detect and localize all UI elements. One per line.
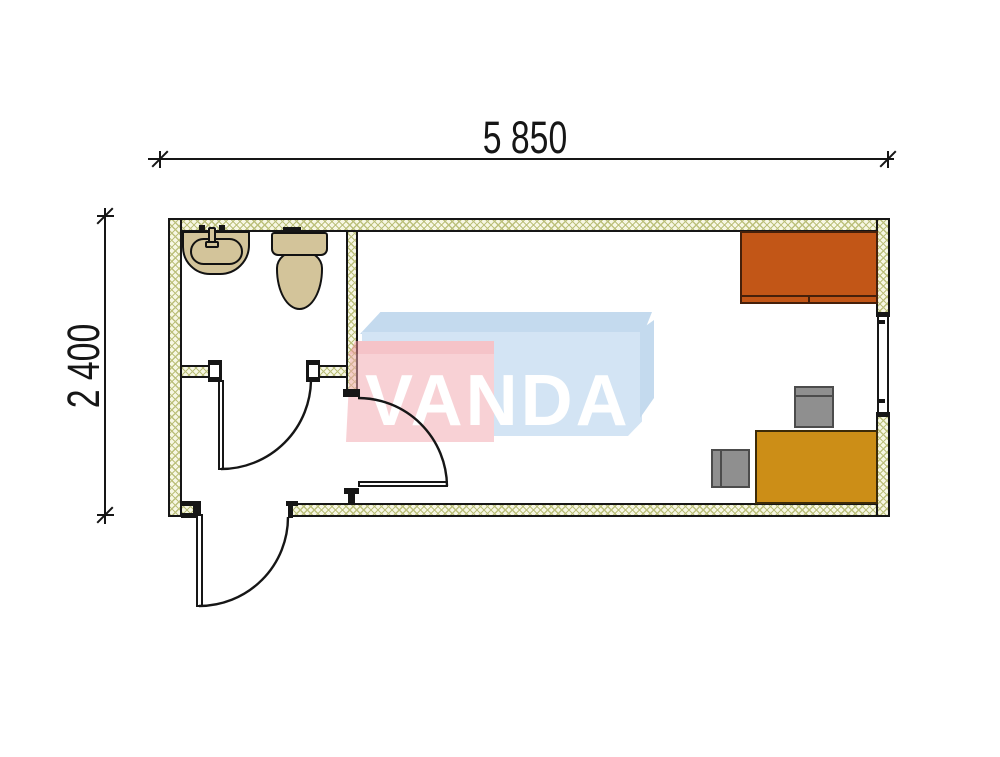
- entry-door-jamb-right-cap: [286, 501, 298, 506]
- cabinet-front-notch: [808, 295, 810, 302]
- faucet-base: [205, 241, 219, 248]
- chair-2: [711, 449, 750, 488]
- chair-2-backrest-line: [720, 451, 722, 486]
- bathroom-door-jamb-left-bar: [219, 360, 222, 382]
- dimension-height-label: 2 400: [61, 254, 107, 479]
- entry-door-jamb-left-cap2: [181, 513, 194, 518]
- watermark-blue-top-bevel: [360, 312, 652, 334]
- brand-watermark: VANDA: [344, 310, 656, 446]
- hall-door-jamb-bottom-bar: [348, 493, 355, 505]
- window-mullion-top: [877, 320, 885, 324]
- window-mullion-bottom: [877, 399, 885, 403]
- chair-1-backrest-line: [796, 395, 832, 397]
- entry-door-opening: [200, 501, 288, 519]
- watermark-text: VANDA: [365, 365, 631, 437]
- bathroom-wall-left-segment: [180, 365, 210, 378]
- watermark-blue-side-bevel: [640, 318, 654, 418]
- hall-door-jamb-top: [343, 389, 360, 397]
- watermark-pink-top-bevel: [348, 341, 494, 356]
- faucet-handle-right: [219, 225, 225, 230]
- toilet-tank: [271, 232, 328, 256]
- faucet-handle-left: [199, 225, 205, 230]
- window-glass-line-outer: [887, 312, 889, 417]
- hall-door-leaf: [358, 481, 448, 487]
- bathroom-door-swing: [221, 379, 311, 469]
- bathroom-door-leaf: [218, 380, 224, 470]
- entry-door-swing: [199, 517, 288, 606]
- wall-top: [168, 218, 890, 232]
- entry-door-jamb-left-cap: [181, 501, 194, 506]
- dimension-width-label: 5 850: [251, 115, 799, 160]
- entry-door-leaf: [196, 514, 203, 607]
- bathroom-door-jamb-right-bar: [306, 360, 309, 382]
- toilet-bowl: [276, 250, 323, 310]
- floor-plan-canvas: 5 850 2 400 VANDA: [0, 0, 1000, 757]
- cabinet: [740, 231, 878, 304]
- desk: [755, 430, 878, 504]
- chair-1: [794, 386, 834, 428]
